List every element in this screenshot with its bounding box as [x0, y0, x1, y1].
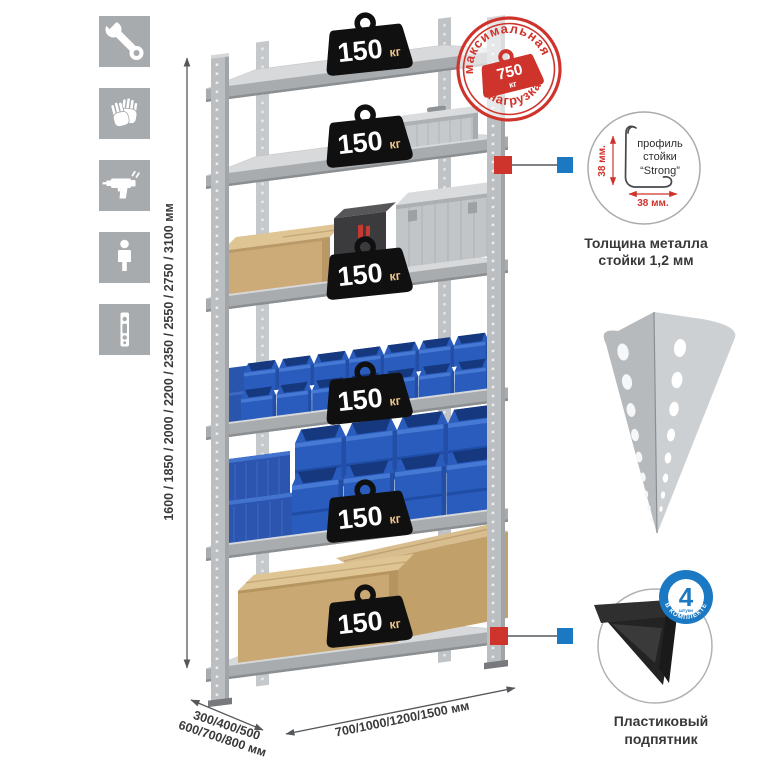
- weight-unit: кг: [389, 617, 402, 632]
- profile-detail: 38 мм. 38 мм. профиль стойки “Strong” То…: [584, 112, 708, 268]
- depth-dimension: 300/400/500 600/700/800 мм: [177, 700, 273, 760]
- weight-value: 150: [336, 34, 384, 69]
- height-options-label: 1600 / 1850 / 2000 / 2200 / 2350 / 2550 …: [162, 203, 176, 520]
- weight-unit: кг: [389, 512, 402, 527]
- shelving-infographic: 1600 / 1850 / 2000 / 2200 / 2350 / 2550 …: [0, 0, 765, 765]
- height-dimension: 1600 / 1850 / 2000 / 2200 / 2350 / 2550 …: [162, 58, 187, 668]
- weight-value: 150: [336, 501, 384, 536]
- foot-caption-line2: подпятник: [624, 731, 698, 747]
- included-count-badge: 4 штуки в комплекте: [659, 570, 713, 624]
- weight-unit: кг: [389, 137, 402, 152]
- width-dimension: 700/1000/1200/1500 мм: [286, 688, 515, 740]
- weight-shelf-1: 150 кг: [321, 11, 413, 77]
- profile-dim-horizontal: 38 мм.: [637, 198, 669, 209]
- callout-red-square-bottom: [490, 627, 508, 645]
- blue-crates-stack: [224, 451, 292, 544]
- foot-caption-line1: Пластиковый: [614, 713, 709, 729]
- weight-shelf-2: 150 кг: [321, 103, 413, 169]
- profile-dim-vertical: 38 мм.: [597, 145, 608, 177]
- profile-label-line3: “Strong”: [640, 165, 680, 177]
- weight-value: 150: [336, 606, 384, 641]
- badge-small-text: штуки: [679, 608, 693, 613]
- weight-unit: кг: [389, 45, 402, 60]
- weight-value: 150: [336, 126, 384, 161]
- profile-label-line1: профиль: [637, 138, 683, 150]
- callout-blue-square-top: [557, 157, 573, 173]
- profile-caption-line2: стойки 1,2 мм: [598, 252, 693, 268]
- weight-unit: кг: [389, 394, 402, 409]
- weight-value: 150: [336, 383, 384, 418]
- width-options-label: 700/1000/1200/1500 мм: [334, 699, 471, 740]
- weight-value: 150: [336, 258, 384, 293]
- callout-red-square-top: [494, 156, 512, 174]
- angle-post-image: [604, 312, 736, 534]
- plastic-foot-detail: 4 штуки в комплекте Пластиковый подпятни…: [594, 570, 713, 747]
- profile-callout: [494, 156, 573, 174]
- weight-unit: кг: [389, 269, 402, 284]
- foot-callout: [490, 627, 573, 645]
- profile-caption-line1: Толщина металла: [584, 235, 708, 251]
- callout-blue-square-bottom: [557, 628, 573, 644]
- profile-label-line2: стойки: [643, 151, 677, 163]
